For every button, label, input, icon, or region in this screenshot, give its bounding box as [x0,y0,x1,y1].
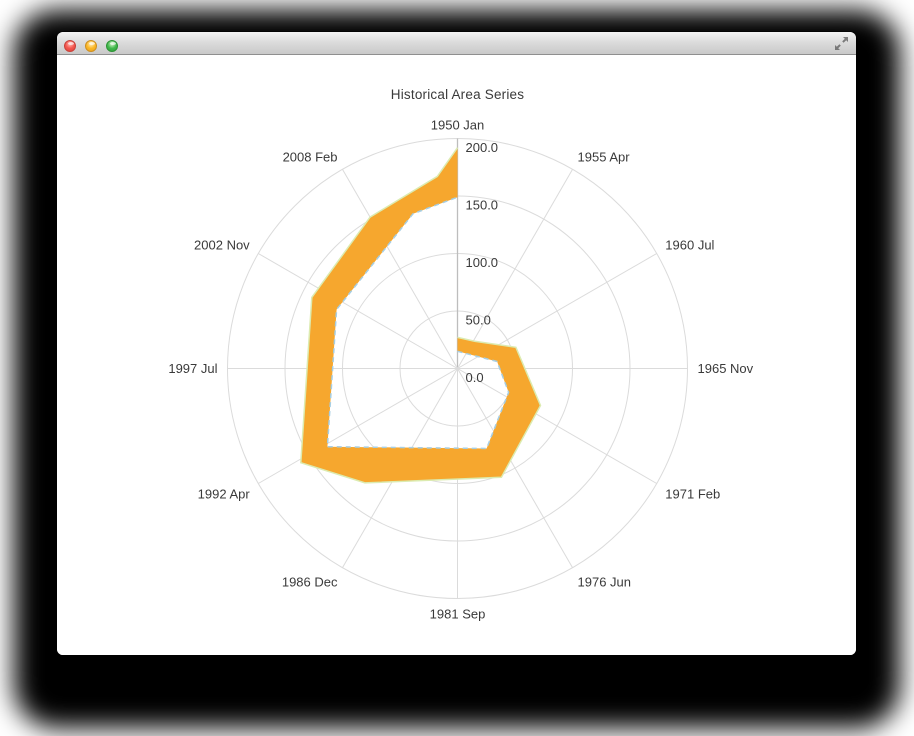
category-label: 1992 Apr [198,487,251,502]
polar-area-chart: 0.050.0100.0150.0200.01950 Jan1955 Apr19… [57,55,856,655]
minimize-button[interactable] [85,40,97,52]
fullscreen-button[interactable] [834,36,849,51]
zoom-button[interactable] [106,40,118,52]
window-titlebar[interactable] [57,32,856,55]
radial-tick-label: 0.0 [466,370,484,385]
category-label: 1986 Dec [282,574,338,589]
chart-area: Historical Area Series 0.050.0100.0150.0… [57,55,856,655]
category-label: 1971 Feb [665,487,720,502]
radial-tick-label: 50.0 [466,313,491,328]
category-label: 2008 Feb [283,150,338,165]
category-label: 1965 Nov [698,361,754,376]
screenshot-stage: Historical Area Series 0.050.0100.0150.0… [0,0,914,736]
radial-tick-label: 200.0 [466,140,499,155]
radial-tick-label: 100.0 [466,255,499,270]
category-label: 1960 Jul [665,238,714,253]
window-controls [64,40,118,52]
close-button[interactable] [64,40,76,52]
category-label: 1950 Jan [431,118,485,133]
app-window: Historical Area Series 0.050.0100.0150.0… [57,32,856,655]
expand-diagonal-arrows-icon [834,36,849,51]
category-label: 1955 Apr [578,150,631,165]
radial-tick-label: 150.0 [466,198,499,213]
category-label: 1976 Jun [578,574,632,589]
chart-title: Historical Area Series [57,87,856,102]
category-label: 1997 Jul [168,361,217,376]
category-label: 2002 Nov [194,238,250,253]
category-label: 1981 Sep [430,607,486,622]
